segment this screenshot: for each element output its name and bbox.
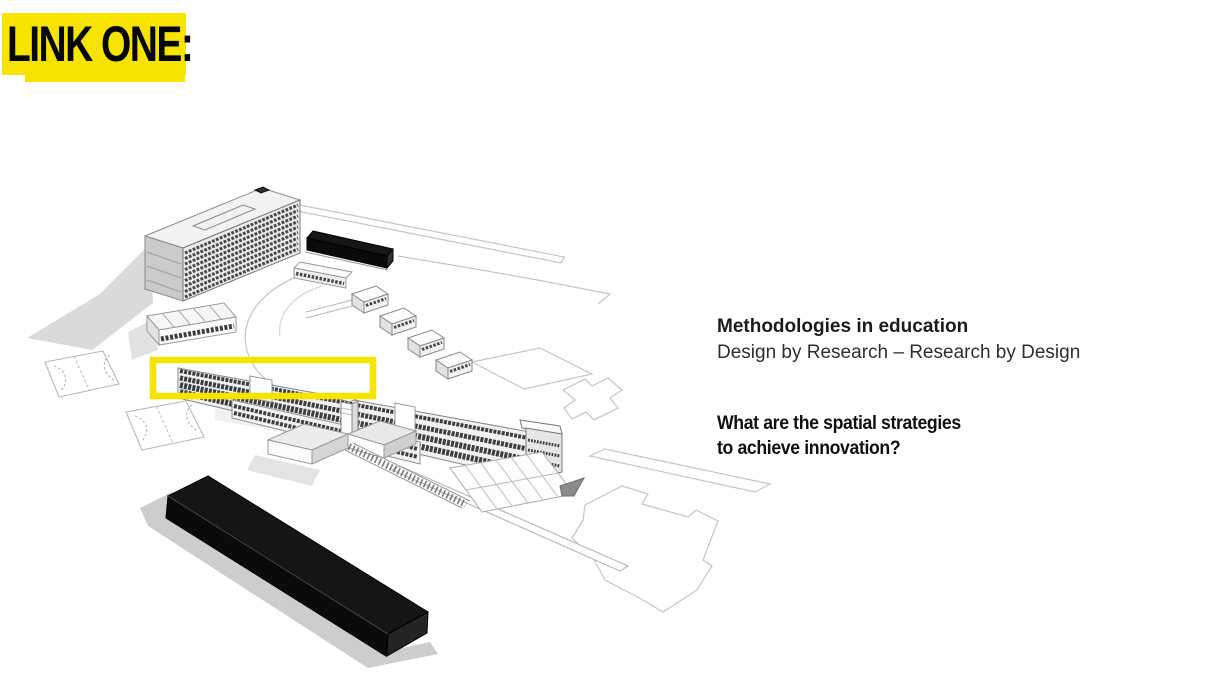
slide-canvas: LINK ONE: Methodologies in education Des… — [0, 0, 1213, 682]
sports-courts — [45, 351, 204, 450]
low-banded-building — [294, 262, 352, 288]
question-line-2: to achieve innovation? — [717, 437, 1163, 461]
skylight-roof-building — [147, 303, 236, 345]
link-one-text: LINK ONE: — [7, 15, 192, 73]
methodologies-title: Methodologies in education — [717, 314, 1197, 340]
link-one-underline — [25, 75, 185, 82]
design-research-subtitle: Design by Research – Research by Design — [717, 340, 1197, 366]
rooftop-black-bar — [305, 231, 393, 270]
black-bar-building — [166, 476, 428, 656]
link-one-label[interactable]: LINK ONE: — [2, 13, 186, 75]
question-line-1: What are the spatial strategies — [717, 412, 1163, 436]
spatial-strategies-question: What are the spatial strategies to achie… — [717, 412, 1163, 461]
tower-slab-building — [145, 187, 300, 301]
annotation-text-block: Methodologies in education Design by Res… — [717, 314, 1197, 461]
terraced-studio-blocks — [306, 286, 472, 379]
